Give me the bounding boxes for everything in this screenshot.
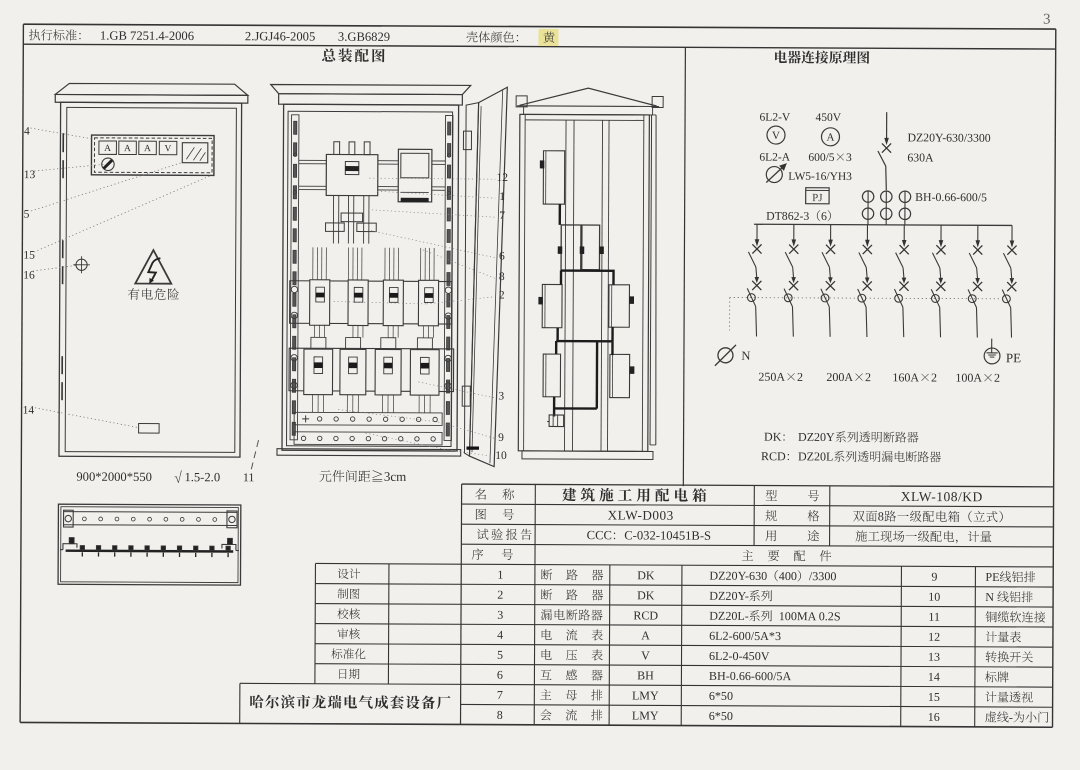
svg-text:LW5-16/YH3: LW5-16/YH3 (788, 171, 852, 183)
svg-text:DZ20Y: DZ20Y (798, 430, 835, 444)
svg-text:13: 13 (24, 169, 36, 181)
svg-text:C-032-10451B-S: C-032-10451B-S (624, 528, 711, 542)
svg-text:5: 5 (24, 209, 30, 221)
svg-text:2.JGJ46-2005: 2.JGJ46-2005 (245, 29, 315, 43)
svg-text:/3300: /3300 (809, 569, 837, 583)
svg-text:11: 11 (928, 610, 940, 624)
svg-text:DK: DK (637, 588, 655, 602)
svg-text:15: 15 (928, 690, 940, 704)
svg-text:2: 2 (797, 370, 803, 384)
svg-text:-: - (1009, 710, 1013, 724)
svg-text:DZ20L-: DZ20L- (709, 609, 749, 623)
svg-text:1.GB 7251.4-2006: 1.GB 7251.4-2006 (100, 29, 194, 43)
svg-text:3: 3 (497, 608, 503, 622)
svg-text:3: 3 (498, 391, 504, 403)
svg-text:BH-0.66-600/5: BH-0.66-600/5 (915, 190, 987, 204)
svg-text:6L2-0-450V: 6L2-0-450V (709, 649, 770, 663)
svg-text:1: 1 (499, 191, 505, 203)
svg-text:450V: 450V (816, 112, 842, 124)
svg-text:XLW-108/KD: XLW-108/KD (901, 489, 983, 504)
svg-text:8: 8 (878, 509, 884, 523)
svg-text:V: V (772, 130, 780, 142)
svg-text:1.5-2.0: 1.5-2.0 (184, 470, 220, 484)
svg-text:900*2000*550: 900*2000*550 (76, 470, 152, 484)
svg-text:PE: PE (1006, 350, 1021, 365)
svg-text:9: 9 (931, 570, 937, 584)
svg-text:5: 5 (497, 648, 503, 662)
svg-text:LMY: LMY (632, 688, 659, 702)
svg-text:BH: BH (637, 668, 654, 682)
svg-text:12: 12 (497, 172, 509, 184)
svg-text:630A: 630A (907, 150, 934, 164)
svg-text:A: A (104, 144, 111, 154)
svg-text:1: 1 (497, 568, 503, 582)
svg-text:10: 10 (495, 450, 507, 462)
svg-text:V: V (165, 144, 172, 154)
svg-text:16: 16 (23, 270, 35, 282)
svg-text:6L2-600/5A*3: 6L2-600/5A*3 (709, 629, 781, 643)
svg-text:DZ20L: DZ20L (798, 449, 833, 463)
svg-text:DZ20Y-: DZ20Y- (709, 589, 749, 603)
svg-text:12: 12 (928, 630, 940, 644)
svg-text:160A: 160A (892, 370, 919, 384)
svg-text:PE: PE (985, 570, 999, 584)
svg-text:V: V (641, 648, 650, 662)
svg-text:3: 3 (846, 152, 852, 164)
svg-text:100A: 100A (955, 371, 982, 385)
svg-text:A: A (826, 132, 834, 144)
svg-text:DZ20Y-630: DZ20Y-630 (709, 569, 767, 583)
svg-text:11: 11 (243, 470, 255, 484)
svg-text:2: 2 (931, 370, 937, 384)
svg-text:A: A (144, 144, 151, 154)
svg-text:14: 14 (928, 670, 940, 684)
svg-text:13: 13 (928, 650, 940, 664)
svg-text:3cm: 3cm (384, 469, 406, 484)
svg-text:4: 4 (497, 628, 503, 642)
svg-text:16: 16 (928, 710, 940, 724)
svg-text:PJ: PJ (812, 192, 823, 204)
svg-text:9: 9 (498, 432, 504, 444)
svg-text:N: N (985, 590, 997, 604)
svg-text:7: 7 (499, 210, 505, 222)
svg-text:XLW-D003: XLW-D003 (608, 507, 674, 522)
svg-text:CCC: CCC (587, 528, 612, 542)
svg-text:15: 15 (23, 250, 35, 262)
svg-text:2: 2 (865, 370, 871, 384)
svg-text:2: 2 (994, 371, 1000, 385)
svg-text:DZ20Y-630/3300: DZ20Y-630/3300 (907, 130, 990, 144)
svg-text:8: 8 (499, 271, 505, 283)
svg-text:250A: 250A (758, 370, 785, 384)
svg-text:DK: DK (764, 430, 782, 444)
svg-text:3.GB6829: 3.GB6829 (338, 30, 390, 44)
svg-text:6*50: 6*50 (709, 689, 733, 703)
svg-text:RCD: RCD (633, 608, 658, 622)
svg-text:10: 10 (928, 590, 940, 604)
svg-text:7: 7 (497, 688, 503, 702)
svg-text:600/5: 600/5 (808, 152, 835, 164)
svg-text:100MA 0.2S: 100MA 0.2S (773, 609, 841, 623)
svg-text:6: 6 (497, 668, 503, 682)
svg-text:3: 3 (1043, 12, 1051, 28)
svg-text:RCD: RCD (761, 449, 786, 463)
svg-text:14: 14 (23, 405, 35, 417)
svg-text:LMY: LMY (632, 708, 659, 722)
svg-text:DK: DK (637, 568, 655, 582)
svg-text:A: A (124, 144, 131, 154)
svg-text:6*50: 6*50 (709, 709, 733, 723)
svg-text:8: 8 (497, 708, 503, 722)
svg-text:BH-0.66-600/5A: BH-0.66-600/5A (709, 669, 792, 683)
svg-text:N: N (741, 349, 750, 363)
svg-text:2: 2 (499, 290, 505, 302)
svg-text:6L2-V: 6L2-V (760, 112, 791, 124)
svg-text:DT862-3: DT862-3 (766, 209, 809, 223)
svg-text:2: 2 (497, 588, 503, 602)
svg-text:6L2-A: 6L2-A (759, 152, 790, 164)
svg-text:400: 400 (779, 569, 797, 583)
svg-text:6: 6 (499, 251, 505, 263)
svg-text:200A: 200A (826, 370, 853, 384)
svg-text:6: 6 (821, 209, 827, 223)
svg-text:A: A (641, 628, 650, 642)
svg-text:4: 4 (24, 126, 30, 138)
